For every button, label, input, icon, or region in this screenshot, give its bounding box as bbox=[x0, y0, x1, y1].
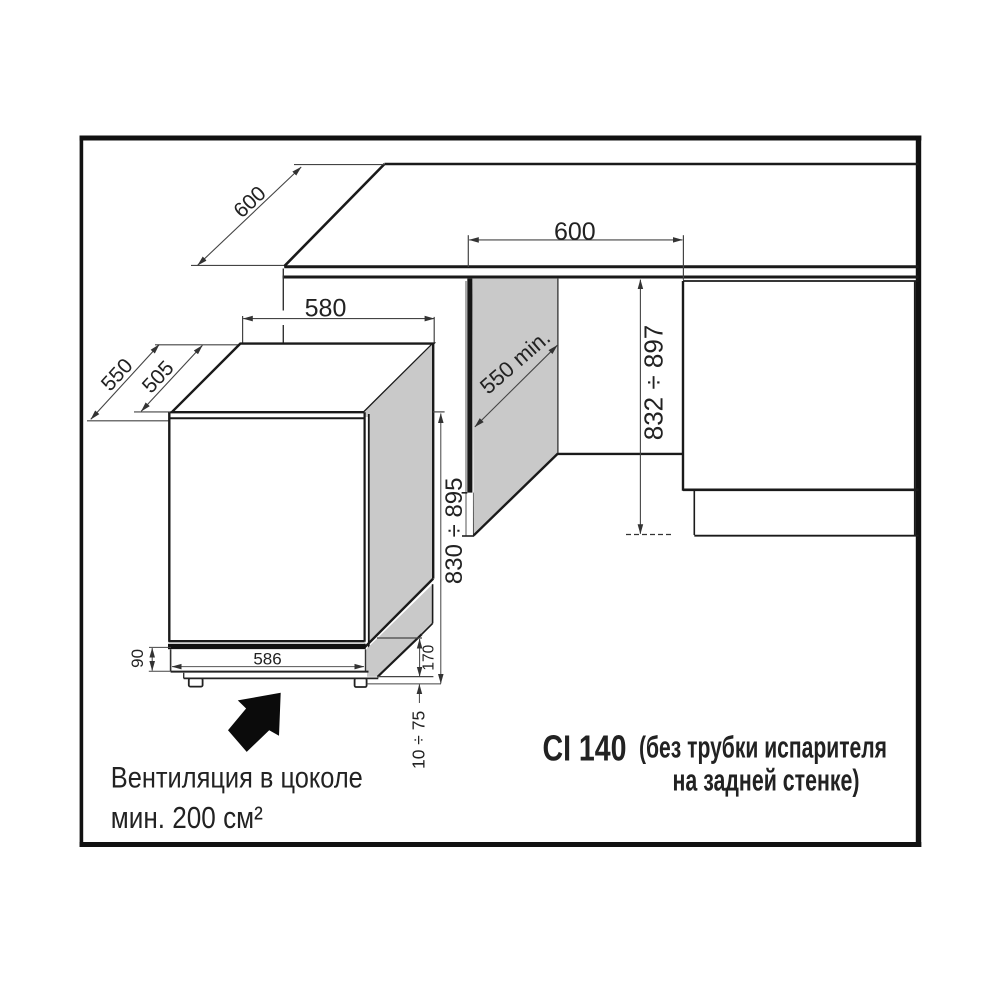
svg-text:830 ÷ 895: 830 ÷ 895 bbox=[441, 478, 468, 585]
svg-text:832 ÷ 897: 832 ÷ 897 bbox=[639, 325, 669, 440]
svg-text:CI 140: CI 140 bbox=[543, 728, 627, 769]
svg-text:(без трубки испарителя: (без трубки испарителя bbox=[639, 730, 887, 765]
svg-text:550: 550 bbox=[97, 354, 138, 395]
svg-text:580: 580 bbox=[305, 294, 347, 322]
svg-text:на задней стенке): на задней стенке) bbox=[673, 763, 860, 798]
svg-text:170: 170 bbox=[420, 644, 437, 670]
svg-text:600: 600 bbox=[554, 218, 596, 246]
svg-text:90: 90 bbox=[128, 649, 147, 668]
svg-text:Вентиляция в цоколе: Вентиляция в цоколе bbox=[111, 762, 363, 795]
svg-text:мин. 200 см²: мин. 200 см² bbox=[111, 800, 263, 835]
svg-text:10 ÷ 75: 10 ÷ 75 bbox=[408, 711, 428, 769]
svg-text:600: 600 bbox=[229, 182, 270, 223]
svg-text:586: 586 bbox=[253, 649, 281, 668]
svg-text:505: 505 bbox=[138, 357, 179, 398]
